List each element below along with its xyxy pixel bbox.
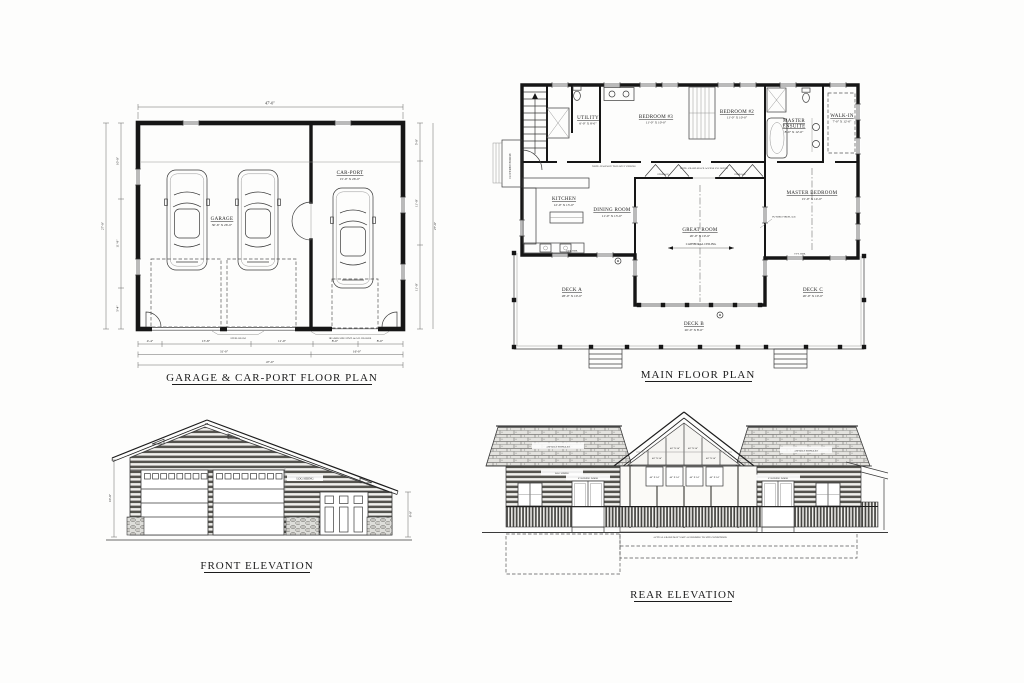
architectural-sheet: GARAGE 30'-6" X 26'-0" CAR-PORT 15'-0" X…: [0, 0, 1024, 683]
svg-text:11'-0" X 13'-0": 11'-0" X 13'-0": [602, 214, 623, 218]
svg-text:27'-0": 27'-0": [433, 221, 437, 230]
door-opening: [572, 507, 604, 527]
svg-text:11'-0": 11'-0": [278, 339, 287, 343]
svg-text:11'-0" X 10'-0": 11'-0" X 10'-0": [646, 121, 667, 125]
svg-text:10'-0": 10'-0": [116, 156, 120, 165]
man-door: [320, 492, 368, 535]
hallway-note: NOTE: HALLWAY TO HAVE 9' CEILING: [592, 165, 636, 168]
svg-text:6' SLIDING DOOR: 6' SLIDING DOOR: [768, 477, 788, 480]
room-label-bedroom3: BEDROOM #3: [639, 115, 673, 120]
svg-text:12'-0" X 13'-0": 12'-0" X 13'-0": [554, 203, 575, 207]
shingles-label: ASPHALT SHINGLES: [532, 443, 584, 450]
svg-text:CATHEDRAL CEILING: CATHEDRAL CEILING: [686, 242, 717, 246]
garage-plan-title: GARAGE & CAR-PORT FLOOR PLAN: [166, 372, 378, 384]
storage-label: STORAGE: [734, 173, 746, 176]
rear-elevation-title: REAR ELEVATION: [630, 589, 736, 601]
svg-text:28'-0" X 10'-0": 28'-0" X 10'-0": [562, 294, 583, 298]
svg-text:LOG SIDING: LOG SIDING: [555, 472, 569, 475]
svg-text:15'-0" X 14'-0": 15'-0" X 14'-0": [802, 197, 823, 201]
rear-window-left: [518, 483, 542, 506]
svg-text:ASPHALT SHINGLES: ASPHALT SHINGLES: [546, 446, 570, 449]
garage-window: [400, 264, 406, 280]
garage-window: [135, 169, 141, 185]
svg-text:16'-0": 16'-0": [353, 349, 362, 353]
ceiling-tag: 9 FT. HDR.: [794, 253, 806, 256]
svg-text:11'-0": 11'-0": [415, 198, 419, 207]
svg-text:20'-0" X 19'-6": 20'-0" X 19'-6": [690, 234, 711, 238]
great-room-glass-wall: [637, 303, 762, 307]
storage-label: STORAGE: [657, 173, 669, 176]
room-label-bedroom2: BEDROOM #2: [720, 110, 754, 115]
siding-label: LOG SIDING: [541, 470, 583, 476]
paper-background: [0, 0, 1024, 683]
shingles-label: ASPHALT SHINGLES: [780, 447, 832, 454]
garage-window: [135, 259, 141, 275]
room-label-walkin: WALK-IN: [830, 114, 854, 119]
garage-door-right: [213, 470, 284, 535]
svg-text:48" X 34": 48" X 34": [706, 457, 716, 460]
svg-text:48" X 34": 48" X 34": [689, 476, 699, 479]
svg-text:6'-0" X 8'-0": 6'-0" X 8'-0": [579, 122, 597, 126]
svg-text:5'-0": 5'-0": [415, 138, 419, 145]
stone-base: [127, 517, 144, 535]
rear-window-right: [816, 483, 840, 506]
garage-door-left: [141, 470, 208, 535]
room-dims-garage: 30'-6" X 26'-0": [212, 223, 233, 227]
svg-text:8'-0" X 12'-0": 8'-0" X 12'-0": [785, 130, 804, 134]
svg-text:FUTURE FIREPLACE: FUTURE FIREPLACE: [772, 216, 796, 219]
room-label-carport: CAR-PORT: [337, 171, 364, 176]
svg-text:15'-8": 15'-8": [202, 339, 211, 343]
svg-text:20'-0" X 8'-0": 20'-0" X 8'-0": [685, 328, 704, 332]
porch-slats: [861, 502, 878, 527]
room-dims-carport: 15'-0" X 26'-0": [340, 177, 361, 181]
stone-base: [367, 517, 392, 535]
svg-text:31'-0": 31'-0": [220, 349, 229, 353]
svg-text:LOG SIDING: LOG SIDING: [296, 477, 314, 481]
svg-text:48" X 34": 48" X 34": [649, 476, 659, 479]
svg-text:4'-4": 4'-4": [147, 339, 154, 343]
room-label-dining: DINING ROOM: [593, 208, 631, 213]
room-label-great-room: GREAT ROOM: [682, 228, 718, 233]
svg-text:48" X 34": 48" X 34": [670, 447, 680, 450]
svg-text:47'-0": 47'-0": [266, 360, 275, 364]
svg-text:10'-0": 10'-0": [108, 493, 112, 502]
svg-text:STEEL BEAM: STEEL BEAM: [230, 337, 246, 340]
svg-text:11'-0" X 10'-0": 11'-0" X 10'-0": [727, 116, 748, 120]
room-label-deck-a: DECK A: [562, 288, 582, 293]
stone-base: [286, 517, 319, 535]
svg-text:ENSUITE: ENSUITE: [783, 125, 806, 130]
svg-text:6' SLIDING DOOR: 6' SLIDING DOOR: [578, 477, 598, 480]
svg-text:48" X 34": 48" X 34": [652, 457, 662, 460]
main-plan-title: MAIN FLOOR PLAN: [641, 369, 756, 381]
room-label-utility: UTILITY: [577, 116, 599, 121]
svg-text:11'-0": 11'-0": [415, 282, 419, 291]
svg-text:48" X 34": 48" X 34": [709, 476, 719, 479]
room-label-garage: GARAGE: [211, 217, 234, 222]
front-elevation-title: FRONT ELEVATION: [200, 560, 313, 572]
room-label-deck-b: DECK B: [684, 322, 704, 327]
svg-text:8'-0": 8'-0": [332, 339, 339, 343]
ceiling-tag: 9 FT. HDR.: [566, 250, 578, 253]
drawing-canvas: GARAGE 30'-6" X 26'-0" CAR-PORT 15'-0" X…: [0, 0, 1024, 683]
garage-window: [335, 120, 351, 126]
svg-text:27'-0": 27'-0": [101, 221, 105, 230]
garage-door-openings: [152, 325, 378, 332]
svg-text:47'-0": 47'-0": [265, 101, 275, 106]
svg-text:7'-0" X 12'-0": 7'-0" X 12'-0": [833, 120, 852, 124]
svg-text:5'-4": 5'-4": [116, 305, 120, 312]
room-label-kitchen: KITCHEN: [552, 197, 576, 202]
crawlspace-note: NOTE: CRAWLSPACE ACCESS VIA HATCH: [680, 167, 728, 170]
garage-window: [183, 120, 199, 126]
svg-text:48" X 34": 48" X 34": [669, 476, 679, 479]
room-label-deck-c: DECK C: [803, 288, 823, 293]
covered-porch-label: COVERED PORCH: [508, 153, 512, 179]
svg-text:48" X 34": 48" X 34": [688, 447, 698, 450]
siding-label: LOG SIDING: [287, 475, 323, 481]
svg-text:11'-8": 11'-8": [116, 239, 120, 248]
svg-text:20'-0" X 10'-0": 20'-0" X 10'-0": [803, 294, 824, 298]
deck-railing: [620, 507, 757, 527]
svg-text:8'-0": 8'-0": [409, 510, 413, 517]
garage-window: [400, 197, 406, 213]
room-label-ensuite: MASTER: [783, 119, 805, 124]
grade-note: ACTUAL GRADE MAY VARY ACCORDING TO SITE …: [653, 536, 727, 539]
room-label-master-bedroom: MASTER BEDROOM: [787, 191, 838, 196]
svg-text:8'-0": 8'-0": [377, 339, 384, 343]
svg-text:ASPHALT SHINGLES: ASPHALT SHINGLES: [794, 450, 818, 453]
door-opening: [762, 507, 794, 527]
